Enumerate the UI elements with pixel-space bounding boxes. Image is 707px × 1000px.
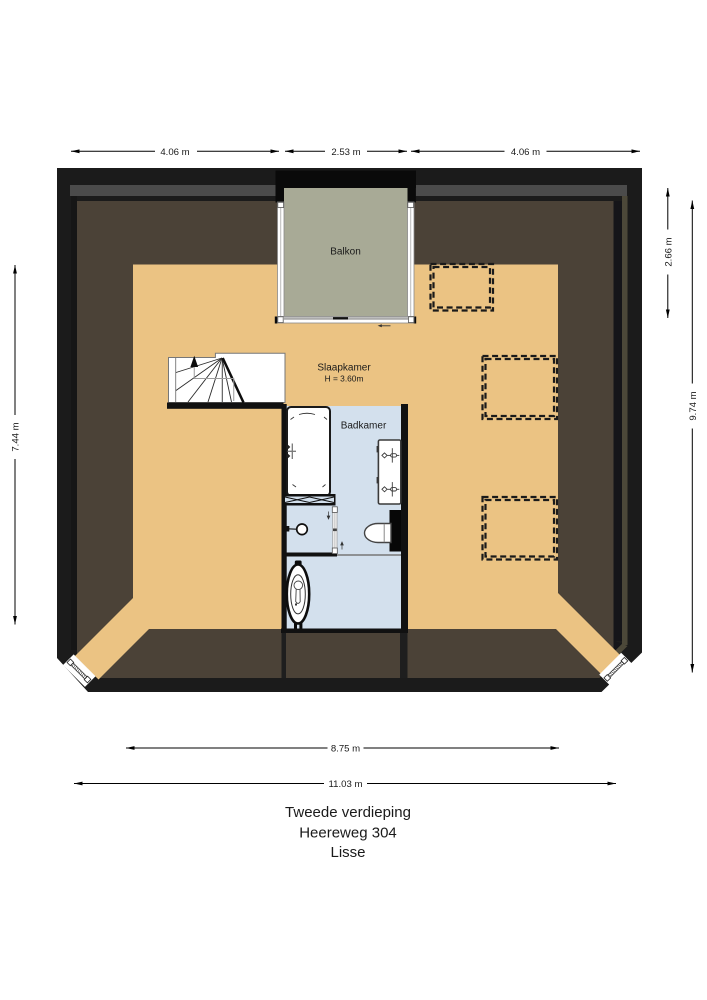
svg-text:Lisse: Lisse — [330, 844, 365, 861]
svg-text:4.06 m: 4.06 m — [511, 147, 540, 158]
svg-text:Heereweg 304: Heereweg 304 — [299, 825, 397, 842]
svg-text:Slaapkamer: Slaapkamer — [317, 363, 371, 374]
svg-text:4.06 m: 4.06 m — [160, 147, 189, 158]
svg-text:Balkon: Balkon — [330, 247, 361, 258]
svg-text:Badkamer: Badkamer — [341, 421, 387, 432]
svg-text:7.44 m: 7.44 m — [11, 422, 22, 451]
svg-text:8.75 m: 8.75 m — [331, 744, 360, 755]
svg-text:2.66 m: 2.66 m — [663, 237, 674, 266]
svg-text:Tweede verdieping: Tweede verdieping — [285, 804, 411, 821]
svg-text:2.53 m: 2.53 m — [331, 147, 360, 158]
svg-text:9.74 m: 9.74 m — [688, 391, 699, 420]
svg-text:H = 3.60m: H = 3.60m — [325, 374, 364, 384]
svg-text:11.03 m: 11.03 m — [329, 779, 363, 790]
